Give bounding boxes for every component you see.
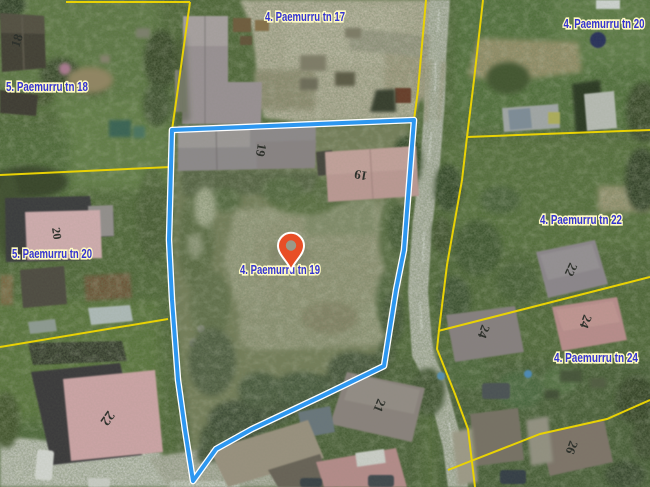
svg-text:4. Paemurru tn 24: 4. Paemurru tn 24 bbox=[554, 350, 639, 365]
svg-text:4. Paemurru tn 19: 4. Paemurru tn 19 bbox=[240, 262, 320, 277]
svg-text:5. Paemurru tn 18: 5. Paemurru tn 18 bbox=[6, 79, 88, 94]
svg-text:4. Paemurru tn 22: 4. Paemurru tn 22 bbox=[540, 212, 622, 227]
svg-text:4. Paemurru tn 20: 4. Paemurru tn 20 bbox=[564, 16, 645, 31]
svg-text:4. Paemurru tn 17: 4. Paemurru tn 17 bbox=[265, 9, 345, 24]
svg-text:5. Paemurru tn 20: 5. Paemurru tn 20 bbox=[12, 246, 92, 261]
